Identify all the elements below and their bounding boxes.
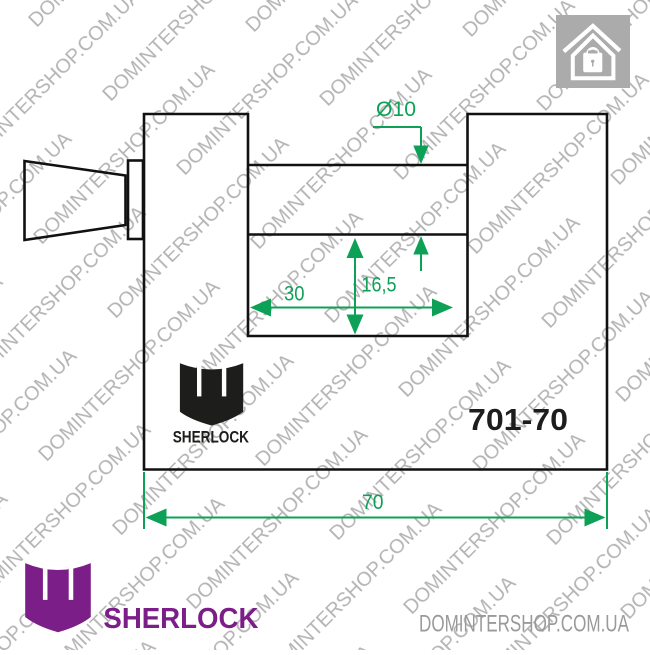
svg-text:DOMINTERSHOP.COM.UA: DOMINTERSHOP.COM.UA: [419, 611, 629, 638]
svg-text:Ø10: Ø10: [376, 98, 416, 121]
svg-text:SHERLOCK: SHERLOCK: [103, 603, 258, 635]
svg-text:70: 70: [362, 491, 384, 514]
svg-text:701-70: 701-70: [468, 402, 568, 437]
svg-text:SHERLOCK: SHERLOCK: [173, 428, 249, 446]
svg-text:30: 30: [284, 283, 305, 306]
svg-text:16,5: 16,5: [362, 274, 397, 297]
